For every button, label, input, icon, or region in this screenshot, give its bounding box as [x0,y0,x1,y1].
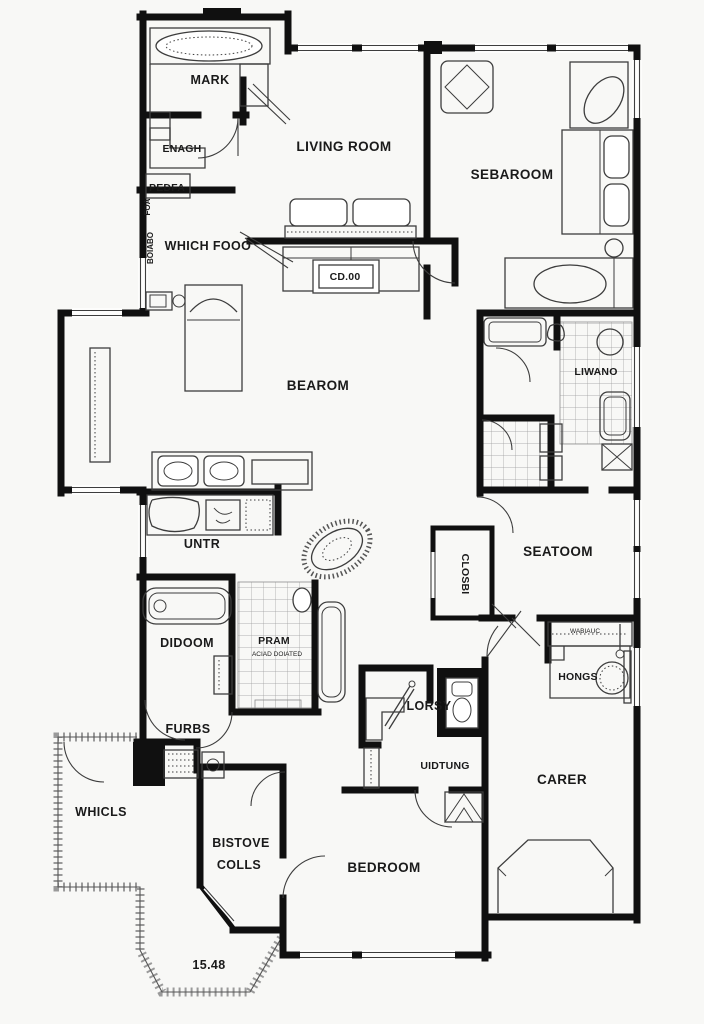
window [556,43,628,53]
window [624,648,642,706]
room-label-which-fooo: WHICH FOOO [165,239,252,253]
door-arc-deck [64,742,104,782]
window [475,43,547,53]
label-wabiauc: WABIAUC [570,628,600,635]
pram-toilet [293,588,311,612]
room-label-enagh: ENAGH [163,143,202,155]
door-leaf-living-top [248,84,290,124]
window [298,43,352,53]
wall-dresser [90,348,110,462]
room-label-bearom: BEAROM [287,378,349,393]
wall-label-foa: FOA [143,198,152,215]
room-label-pram-sub: ACIAD DOIATED [252,651,302,658]
bay-window [498,840,613,913]
vanity-tub-counter [505,258,633,308]
floor-plan-drawing: MARK ENAGH PEDFA FOA BOIABO LIVING ROOM … [0,0,704,1024]
room-label-bistove: BISTOVE [212,836,269,850]
windows [72,43,642,960]
laundry-counter [147,495,273,535]
window [429,552,437,598]
double-vanity [152,452,312,490]
room-label-uidtung: UIDTUNG [420,760,469,772]
oval-rug [294,510,380,589]
triangle-fixture [445,792,483,822]
room-label-seatoom: SEATOOM [523,544,593,559]
door-arc-mark [198,118,238,158]
bay-window-corners [498,868,613,876]
shower-tile-floor [560,322,632,444]
crib-desk [570,62,632,130]
room-label-sebaroom: SEBAROOM [471,167,554,182]
window-diagonal [205,888,234,921]
room-label-pedfa: PEDFA [149,182,185,194]
door-arc-bedroom-left [283,856,325,898]
wall-chunk-kitchen [133,742,165,786]
window [362,43,418,53]
room-label-lorsy: LORSY [406,699,451,713]
room-label-whicls: WHICLS [75,805,127,819]
room-label-carer: CARER [537,772,587,787]
window [632,552,642,598]
armchair [441,61,493,113]
room-label-furbs: FURBS [165,722,210,736]
window [632,500,642,546]
linen-shelf [364,748,379,788]
room-label-hongs: HONGS [558,671,598,683]
window [362,950,455,960]
wall-label-bonbo: BOIABO [146,232,155,264]
bathtub [484,318,564,346]
wall-chunk-living [424,41,442,54]
window [632,347,642,427]
room-label-liwano: LIWANO [574,366,617,378]
window [72,485,120,495]
tv-stand [146,292,185,310]
window [300,950,352,960]
bearom-bed [185,285,242,391]
room-label-pram: PRAM [258,635,290,647]
room-label-closbi: CLOSBI [459,554,471,595]
label-dimension: 15.48 [192,958,225,972]
pram-bathtub [318,602,345,702]
window [72,308,122,318]
floor-plan-page: MARK ENAGH PEDFA FOA BOIABO LIVING ROOM … [0,0,704,1024]
room-label-living-room: LIVING ROOM [296,139,391,154]
room-label-bedroom: BEDROOM [347,860,420,875]
room-label-didoom: DIDOOM [160,636,214,650]
nightstand [605,239,623,257]
room-label-colls: COLLS [217,858,261,872]
didoom-bathtub [143,588,231,624]
label-cd-table: CD.00 [330,271,361,283]
bistove-diagonal-wall [200,885,233,928]
room-label-untr: UNTR [184,537,220,551]
sebaroom-bed [562,130,633,234]
wall-chunk-top [203,8,241,20]
door-leaf-hongs [512,618,540,646]
x-box-fixture [602,444,632,470]
door-arc-bath [496,348,530,382]
window [632,60,642,118]
room-label-mark: MARK [190,73,229,87]
